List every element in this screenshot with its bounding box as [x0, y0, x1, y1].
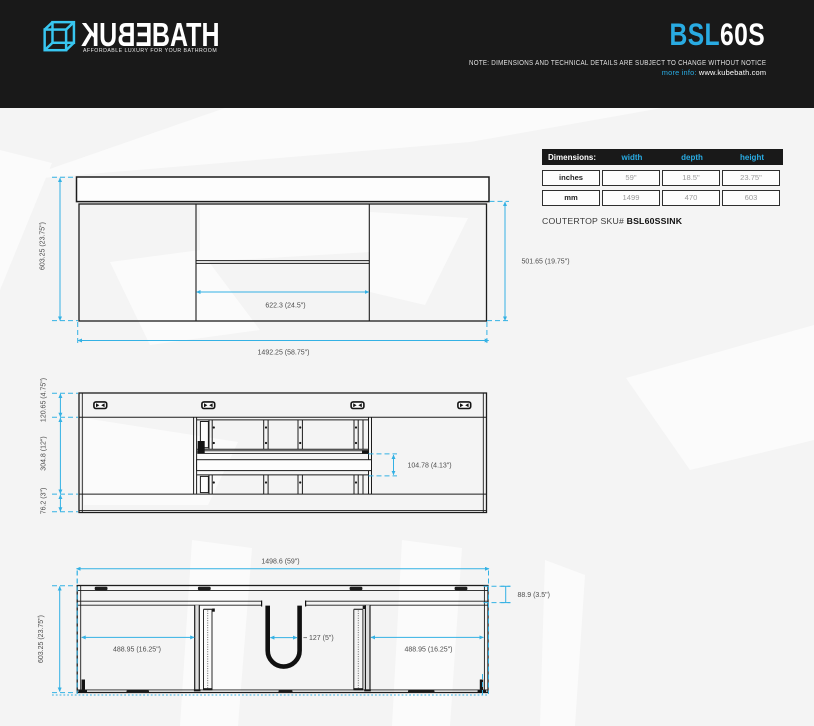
svg-text:120.65 (4.75"): 120.65 (4.75") [40, 378, 47, 422]
svg-text:88.9 (3.5"): 88.9 (3.5") [518, 592, 550, 599]
svg-text:1498.6 (59"): 1498.6 (59") [261, 559, 299, 566]
svg-text:622.3 (24.5"): 622.3 (24.5") [265, 302, 305, 309]
svg-text:76.2 (3"): 76.2 (3") [40, 488, 47, 515]
svg-text:1492.25 (58.75"): 1492.25 (58.75") [258, 350, 310, 357]
svg-text:304.8 (12"): 304.8 (12") [40, 436, 47, 470]
svg-text:501.65 (19.75"): 501.65 (19.75") [522, 258, 570, 265]
svg-text:603.25 (23.75"): 603.25 (23.75") [38, 615, 45, 663]
svg-text:127 (5"): 127 (5") [309, 635, 334, 642]
svg-text:488.95 (16.25"): 488.95 (16.25") [113, 647, 161, 654]
svg-text:488.95 (16.25"): 488.95 (16.25") [404, 647, 452, 654]
svg-text:603.25 (23.75"): 603.25 (23.75") [40, 222, 47, 270]
svg-text:104.78 (4.13"): 104.78 (4.13") [408, 463, 452, 470]
